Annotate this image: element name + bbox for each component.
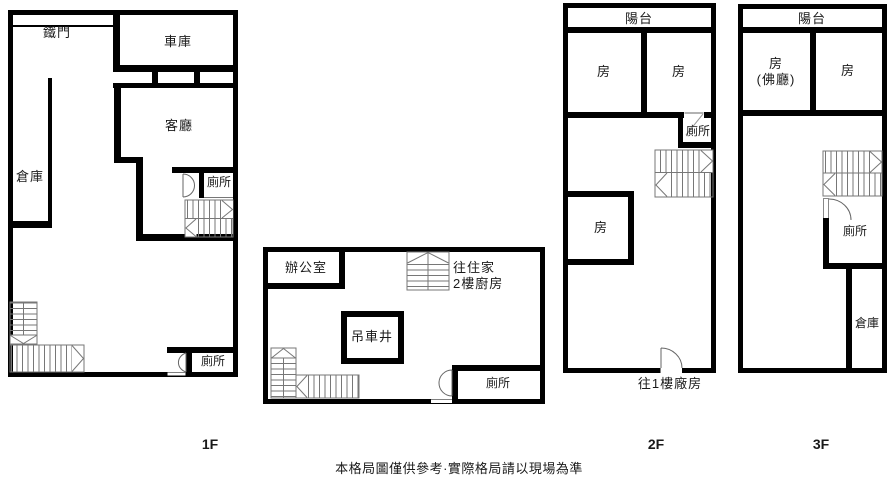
disclaimer-caption: 本格局圖僅供參考·實際格局請以現場為準 (335, 461, 583, 477)
wall (568, 191, 634, 197)
door-gap (168, 373, 186, 376)
wall (268, 283, 345, 289)
label-toilet-annex: 廁所 (486, 375, 510, 391)
stairs (407, 252, 449, 290)
wall (48, 78, 52, 224)
wall (186, 347, 192, 375)
floor1-plan (8, 13, 238, 376)
door-frame (824, 199, 829, 220)
label-exit-note-2f: 往1樓廠房 (638, 376, 702, 392)
wall (678, 142, 716, 148)
wall (678, 118, 683, 143)
label-room-3f-left-line1: 房 (757, 56, 796, 72)
label-floor-1f: 1F (202, 436, 218, 452)
label-room-2f-lower: 房 (594, 220, 608, 236)
wall (452, 365, 458, 401)
floor2-plan (563, 6, 716, 374)
label-balcony-3f: 陽台 (798, 11, 826, 27)
label-office: 辦公室 (285, 260, 327, 276)
wall (453, 365, 542, 371)
label-toilet-3f: 廁所 (843, 223, 867, 239)
stairs (655, 150, 713, 197)
label-room-3f-left: 房 (佛廳) (757, 56, 796, 88)
label-stairs-note: 往住家 2樓廚房 (453, 260, 503, 292)
label-crane-shaft: 吊車井 (351, 329, 393, 345)
wall (641, 33, 647, 117)
label-balcony-2f: 陽台 (625, 11, 653, 27)
label-toilet-2f: 廁所 (686, 123, 710, 139)
stairs (10, 302, 84, 372)
floorplan-canvas (0, 0, 889, 485)
door-gap (431, 400, 452, 404)
wall (628, 191, 634, 265)
stairs (823, 151, 882, 196)
wall-balcony (563, 27, 716, 33)
wall (113, 13, 120, 70)
label-storage-1f: 倉庫 (16, 169, 44, 185)
wall (846, 269, 852, 373)
label-toilet-1f-lower: 廁所 (201, 353, 225, 369)
wall (738, 110, 887, 116)
label-stairs-note-line2: 2樓廚房 (453, 276, 503, 292)
wall (113, 65, 238, 72)
label-room-3f-left-line2: (佛廳) (757, 72, 796, 88)
wall (823, 263, 887, 269)
door-gap (661, 368, 683, 374)
door-swing (439, 370, 452, 396)
wall (810, 33, 816, 116)
label-storage-3f: 倉庫 (855, 315, 879, 331)
wall (8, 221, 52, 228)
door-swing (829, 199, 851, 220)
label-stairs-note-line1: 往住家 (453, 260, 503, 276)
label-living-room: 客廳 (165, 118, 193, 134)
door-swing (178, 353, 186, 372)
wall (823, 218, 829, 269)
label-room-2f-left: 房 (597, 64, 611, 80)
floorplan-page: 鐵門 車庫 客廳 倉庫 廁所 廁所 1F 辦公室 往住家 2樓廚房 吊車井 廁所… (0, 0, 889, 485)
label-iron-gate: 鐵門 (43, 25, 71, 41)
label-garage: 車庫 (164, 34, 192, 50)
label-room-3f-right: 房 (841, 63, 855, 79)
label-floor-3f: 3F (813, 436, 829, 452)
wall (172, 167, 238, 173)
wall-balcony (738, 27, 887, 33)
wall (136, 157, 143, 240)
label-toilet-1f-upper: 廁所 (207, 174, 231, 190)
label-room-2f-right: 房 (672, 64, 686, 80)
stairs (185, 200, 233, 237)
door-swing (661, 348, 682, 368)
wall (113, 83, 238, 88)
label-floor-2f: 2F (648, 436, 664, 452)
wall (114, 83, 121, 162)
wall (152, 65, 158, 88)
wall (568, 259, 634, 265)
door-swing (183, 174, 195, 197)
wall (199, 167, 204, 198)
wall (194, 65, 200, 88)
